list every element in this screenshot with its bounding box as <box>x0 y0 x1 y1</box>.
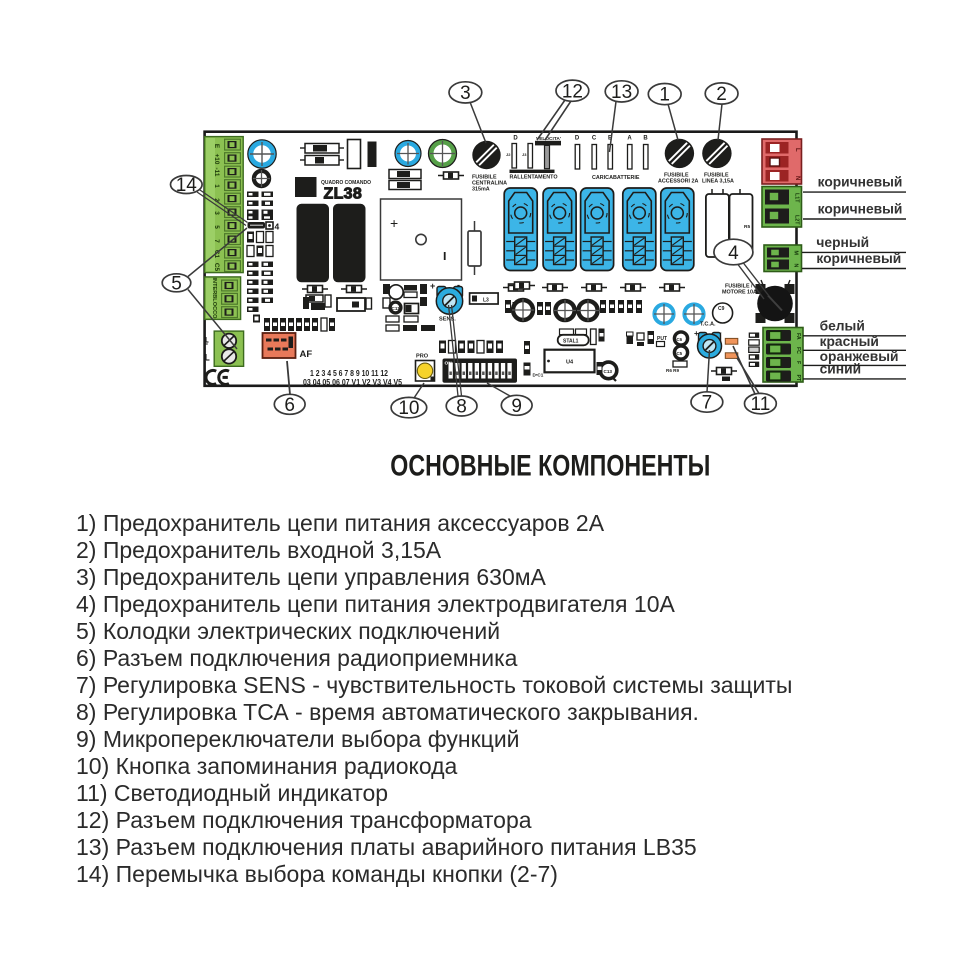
svg-text:315mA: 315mA <box>472 187 490 193</box>
svg-text:3: 3 <box>460 83 471 104</box>
svg-text:J2: J2 <box>506 152 511 157</box>
svg-text:8) Регулировка ТСА - время авт: 8) Регулировка ТСА - время автоматическо… <box>76 699 699 725</box>
svg-text:3) Предохранитель цепи управле: 3) Предохранитель цепи управления 630мА <box>76 564 547 590</box>
svg-text:12) Разъем подключения трансфо: 12) Разъем подключения трансформатора <box>76 807 532 833</box>
svg-text:T.C.A.: T.C.A. <box>700 322 716 328</box>
svg-text:RALLENTAMENTO: RALLENTAMENTO <box>510 175 558 181</box>
svg-text:7: 7 <box>213 239 220 243</box>
svg-text:M: M <box>793 251 799 256</box>
svg-text:STAL1: STAL1 <box>563 339 579 345</box>
svg-text:R5: R5 <box>744 224 750 230</box>
svg-text:-11: -11 <box>213 168 220 177</box>
svg-text:4) Предохранитель цепи питания: 4) Предохранитель цепи питания электродв… <box>76 591 675 617</box>
svg-text:1: 1 <box>659 85 670 106</box>
svg-text:7) Регулировка SENS - чувствит: 7) Регулировка SENS - чувствительность т… <box>76 672 792 698</box>
svg-text:11) Светодиодный индикатор: 11) Светодиодный индикатор <box>76 780 388 806</box>
svg-text:+10: +10 <box>213 154 220 165</box>
svg-text:коричневый: коричневый <box>816 251 901 266</box>
svg-text:черный: черный <box>816 235 869 250</box>
svg-text:7: 7 <box>702 393 713 414</box>
svg-text:FC: FC <box>795 347 801 354</box>
svg-text:10: 10 <box>398 398 419 419</box>
svg-text:C9: C9 <box>718 306 725 312</box>
svg-text:U4: U4 <box>566 360 574 366</box>
svg-text:6: 6 <box>284 395 295 416</box>
svg-text:4: 4 <box>728 243 739 264</box>
svg-text:C: C <box>592 136 597 142</box>
svg-text:R6 R9: R6 R9 <box>666 368 679 373</box>
svg-text:9: 9 <box>511 396 522 417</box>
svg-text:A: A <box>627 136 632 142</box>
svg-text:INTERBLOCCO: INTERBLOCCO <box>211 277 217 319</box>
svg-text:1) Предохранитель цепи питания: 1) Предохранитель цепи питания аксессуар… <box>76 510 605 536</box>
svg-text:5: 5 <box>213 225 220 229</box>
svg-text:8: 8 <box>456 397 467 418</box>
svg-text:ОСНОВНЫЕ КОМПОНЕНТЫ: ОСНОВНЫЕ КОМПОНЕНТЫ <box>390 450 710 483</box>
svg-text:MOTORE 10A: MOTORE 10A <box>722 290 757 296</box>
svg-text:5) Колодки электрических подкл: 5) Колодки электрических подключений <box>76 618 500 644</box>
svg-text:+: + <box>430 281 435 291</box>
svg-text:2: 2 <box>716 84 727 105</box>
svg-text:B: B <box>643 136 648 142</box>
svg-text:FA: FA <box>795 333 801 340</box>
svg-text:PT: PT <box>795 375 801 382</box>
svg-text:13: 13 <box>611 82 632 103</box>
svg-text:+: + <box>390 215 398 231</box>
svg-text:14: 14 <box>176 175 198 196</box>
svg-text:D•C1: D•C1 <box>533 373 544 378</box>
svg-text:03 04 05 06 07 V1 V2 V3 V4 V5: 03 04 05 06 07 V1 V2 V3 V4 V5 <box>303 378 402 387</box>
svg-text:ZL38: ZL38 <box>324 186 363 203</box>
svg-text:N: N <box>794 176 800 180</box>
svg-text:5: 5 <box>171 274 182 295</box>
svg-text:C13: C13 <box>604 369 613 374</box>
svg-text:ACCESSORI 2A: ACCESSORI 2A <box>658 179 699 185</box>
svg-text:C5: C5 <box>213 263 220 272</box>
svg-text:C5: C5 <box>677 351 683 356</box>
svg-text:синий: синий <box>820 361 861 376</box>
svg-text:L: L <box>794 148 800 152</box>
svg-text:1 2 3 4 5 6 7 8 9 10 11 12: 1 2 3 4 5 6 7 8 9 10 11 12 <box>310 369 388 378</box>
svg-text:9) Микропереключатели выбора ф: 9) Микропереключатели выбора функций <box>76 726 520 752</box>
svg-text:L2T: L2T <box>794 215 800 225</box>
svg-text:L1T: L1T <box>794 193 800 203</box>
svg-text:CARICABATTERIE: CARICABATTERIE <box>592 175 640 181</box>
svg-text:D: D <box>513 136 518 142</box>
svg-text:коричневый: коричневый <box>818 175 903 190</box>
svg-text:AF: AF <box>300 349 313 360</box>
svg-text:LINEA 3,15A: LINEA 3,15A <box>702 179 734 185</box>
svg-text:красный: красный <box>820 334 879 349</box>
svg-text:12: 12 <box>562 81 583 102</box>
svg-text:N: N <box>793 264 799 268</box>
svg-text:10) Кнопка запоминания радиоко: 10) Кнопка запоминания радиокода <box>76 753 458 779</box>
svg-text:3: 3 <box>213 211 220 215</box>
svg-text:11: 11 <box>751 394 771 415</box>
svg-text:L3: L3 <box>483 298 489 304</box>
svg-text:2) Предохранитель входной 3,15: 2) Предохранитель входной 3,15А <box>76 537 442 563</box>
svg-text:E: E <box>213 144 220 149</box>
svg-text:13) Разъем подключения платы а: 13) Разъем подключения платы аварийного … <box>76 834 697 860</box>
svg-text:6) Разъем подключения радиопри: 6) Разъем подключения радиоприемника <box>76 645 518 671</box>
svg-text:14) Перемычка выбора команды к: 14) Перемычка выбора команды кнопки (2-7… <box>76 861 558 887</box>
svg-text:D: D <box>575 136 580 142</box>
svg-text:белый: белый <box>820 318 865 333</box>
svg-text:F: F <box>795 361 801 364</box>
svg-text:4: 4 <box>275 222 280 232</box>
svg-text:J3: J3 <box>522 152 527 157</box>
svg-text:C11: C11 <box>392 306 401 311</box>
svg-text:коричневый: коричневый <box>818 202 903 217</box>
svg-text:PRO: PRO <box>416 354 429 360</box>
svg-text:1: 1 <box>213 184 220 188</box>
svg-text:C6: C6 <box>677 337 683 342</box>
